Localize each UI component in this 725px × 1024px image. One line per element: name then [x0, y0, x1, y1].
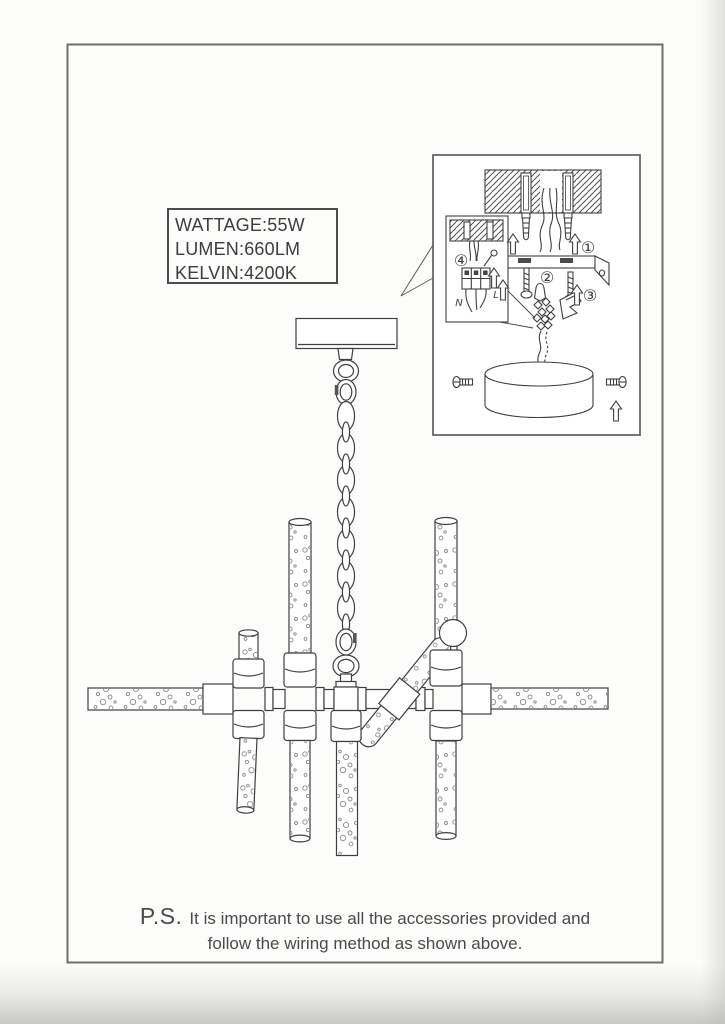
scan-edge-bottom: [0, 964, 725, 1024]
spec-lumen: LUMEN:660LM: [175, 237, 336, 261]
live-wire-label: L: [493, 290, 499, 301]
horizontal-arm: [88, 674, 608, 714]
footnote: P.S.It is important to use all the acces…: [67, 903, 663, 954]
spec-wattage: WATTAGE:55W: [175, 213, 336, 237]
step-2-label: ②: [540, 268, 554, 287]
hub-neck: [341, 674, 352, 682]
diagram-svg: ① ② ③ ④ N L: [0, 0, 725, 1024]
footnote-text1: It is important to use all the accessori…: [189, 909, 590, 928]
hanging-ring: [334, 360, 359, 405]
footnote-line1: P.S.It is important to use all the acces…: [67, 903, 663, 930]
vertical-tube-2-upper: [289, 519, 311, 654]
vertical-tube-4-lower: [436, 741, 456, 839]
scanned-instruction-page: ① ② ③ ④ N L WATTAGE:55W LUMEN:660LM KELV…: [0, 0, 725, 1024]
chain-end-link: [333, 629, 359, 677]
vertical-tube-1-lower: [237, 738, 257, 814]
footnote-line2: follow the wiring method as shown above.: [67, 934, 663, 954]
wall-anchor-left: [522, 213, 530, 240]
vertical-tube-3-lower: [337, 742, 358, 856]
step-1-label: ①: [581, 238, 595, 257]
step-4-label: ④: [454, 251, 468, 270]
inset-canopy: [485, 362, 593, 417]
scan-edge-right: [701, 0, 725, 1024]
ps-label: P.S.: [140, 903, 183, 929]
vertical-tube-2-lower: [290, 741, 310, 842]
chain: [338, 402, 355, 635]
spec-kelvin: KELVIN:4200K: [175, 261, 336, 285]
neutral-wire-label: N: [455, 298, 463, 309]
center-hub: [334, 687, 358, 711]
vertical-tube-1-upper: [239, 630, 258, 660]
wall-anchor-right: [564, 213, 572, 240]
ball-joint: [440, 620, 467, 647]
spec-box: WATTAGE:55W LUMEN:660LM KELVIN:4200K: [167, 208, 338, 284]
inset-leader-lines: [401, 245, 433, 296]
wiring-inset: ① ② ③ ④ N L: [433, 155, 640, 435]
ceiling-plate: [296, 319, 397, 360]
step-3-label: ③: [583, 286, 597, 305]
